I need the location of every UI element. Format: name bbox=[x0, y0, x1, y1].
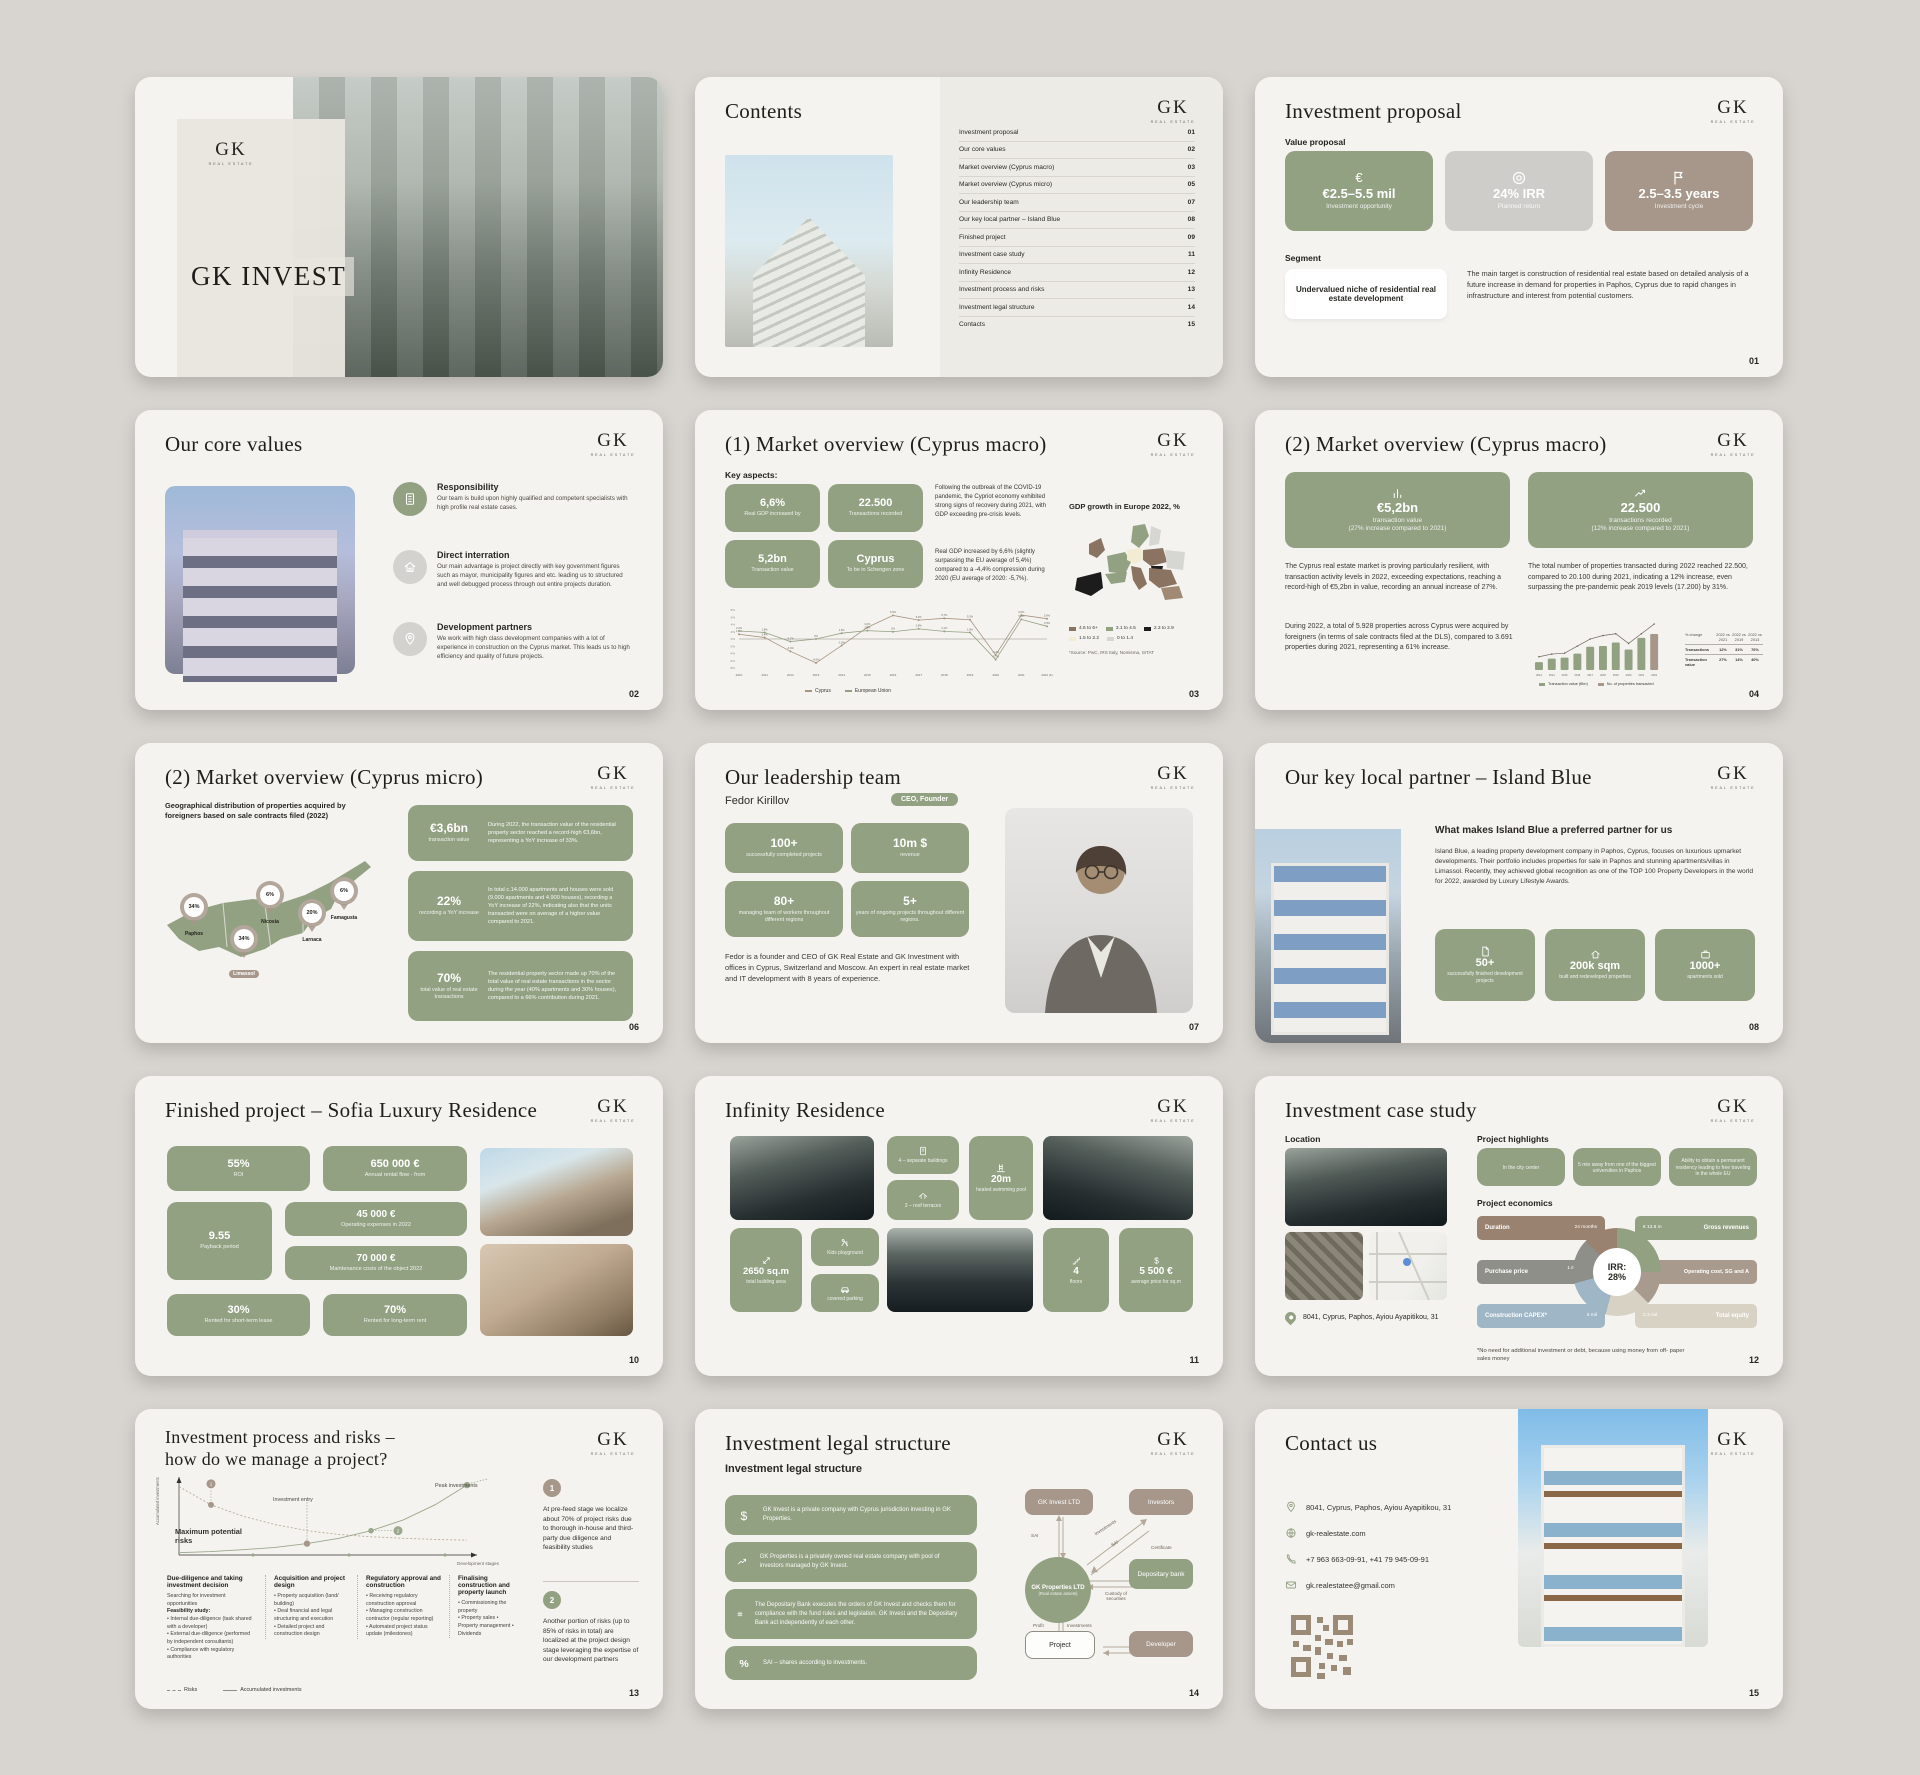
highlight-card: Ability to obtain a permanent residency … bbox=[1669, 1148, 1757, 1186]
gk-logo: GKREAL ESTATE bbox=[1709, 430, 1757, 457]
gk-logo-subtext: REAL ESTATE bbox=[1149, 786, 1197, 790]
gk-logo-text: GK bbox=[1149, 1096, 1197, 1118]
project-stat-card: 70%Rented for long-term rent bbox=[323, 1294, 467, 1336]
svg-text:2021: 2021 bbox=[1638, 673, 1644, 677]
card-value: 80+ bbox=[774, 894, 794, 908]
gk-logo-subtext: REAL ESTATE bbox=[589, 1119, 637, 1123]
page-number: 08 bbox=[1749, 1022, 1759, 1032]
slide-13-process-risks[interactable]: Investment process and risks – how do we… bbox=[135, 1409, 663, 1709]
direct-interaction-icon-circle bbox=[393, 550, 427, 584]
value-card-cycle: 2.5–3.5 years Investment cycle bbox=[1605, 151, 1753, 231]
percent-icon: % bbox=[737, 1656, 751, 1670]
stage-heading: Due-diligence and taking investment deci… bbox=[167, 1575, 253, 1589]
trend-up-icon bbox=[1634, 487, 1647, 500]
legal-card-4: % SAI – shares according to investments. bbox=[725, 1646, 977, 1680]
contents-item[interactable]: Market overview (Cyprus macro)03 bbox=[959, 159, 1195, 177]
project-stat-card: 70 000 €Maintenance costs of the object … bbox=[285, 1246, 467, 1280]
core-value-text: Our main advantage is project directly w… bbox=[437, 563, 633, 590]
gk-logo-text: GK bbox=[1149, 97, 1197, 119]
page-title: (2) Market overview (Cyprus micro) bbox=[165, 765, 483, 790]
svg-text:2022 (F): 2022 (F) bbox=[1041, 673, 1052, 677]
contents-item-page: 12 bbox=[1188, 269, 1195, 276]
card-value: 70% bbox=[384, 1304, 406, 1316]
gk-logo: GK REAL ESTATE bbox=[207, 139, 255, 166]
stage-heading: Regulatory approval and construction bbox=[366, 1575, 444, 1589]
card-caption: Investment opportunity bbox=[1326, 203, 1392, 211]
entry-annotation: Investment entry bbox=[273, 1497, 313, 1503]
card-caption: floors bbox=[1070, 1279, 1082, 1286]
ribbon-value: € 13.8 m bbox=[1643, 1225, 1662, 1231]
card-caption-2: (27% increase compared to 2021) bbox=[1349, 525, 1447, 533]
gk-logo-text: GK bbox=[589, 1429, 637, 1451]
gk-logo: GKREAL ESTATE bbox=[1149, 763, 1197, 790]
transactions-combo-chart: 2013201420152016201720182019202020212022 bbox=[1523, 618, 1671, 684]
card-caption: Real GDP increased by bbox=[744, 511, 800, 518]
economics-donut-center: IRR: 28% bbox=[1593, 1248, 1641, 1296]
legal-card-1: $ GK Invest is a private company with Cy… bbox=[725, 1495, 977, 1535]
address-text: 8041, Cyprus, Paphos, Ayiou Ayapitikou, … bbox=[1303, 1314, 1439, 1321]
page-title: Contents bbox=[725, 99, 802, 124]
contents-item-label: Finished project bbox=[959, 234, 1006, 241]
card-value: 1000+ bbox=[1690, 960, 1721, 972]
contact-text: gk.realestatee@gmail.com bbox=[1306, 1581, 1395, 1590]
card-text: GK Invest is a private company with Cypr… bbox=[763, 1506, 965, 1524]
table-cell: 31% bbox=[1731, 647, 1747, 652]
gk-logo-text: GK bbox=[1149, 1429, 1197, 1451]
project-stat-card: 30%Rented for short-term lease bbox=[167, 1294, 310, 1336]
contents-item[interactable]: Our key local partner – Island Blue08 bbox=[959, 212, 1195, 230]
card-caption: Operating expenses in 2022 bbox=[341, 1222, 411, 1229]
svg-text:2,2%: 2,2% bbox=[736, 626, 743, 630]
gk-logo-subtext: REAL ESTATE bbox=[1709, 120, 1757, 124]
highlight-text: Ability to obtain a permanent residency … bbox=[1673, 1158, 1753, 1178]
legend-label: 1.5 to 2.2 bbox=[1079, 636, 1099, 641]
slide-02-contents[interactable]: Contents GK REAL ESTATE Investment propo… bbox=[695, 77, 1223, 377]
responsibility-icon-circle bbox=[393, 482, 427, 516]
svg-text:-2%: -2% bbox=[730, 644, 736, 648]
card-value: 30% bbox=[227, 1304, 249, 1316]
contents-item[interactable]: Our leadership team07 bbox=[959, 194, 1195, 212]
card-value: 70 000 € bbox=[357, 1253, 396, 1264]
gk-logo-text: GK bbox=[1709, 1429, 1757, 1451]
slide-10-finished-project[interactable]: Finished project – Sofia Luxury Residenc… bbox=[135, 1076, 663, 1376]
stage-line: • Compliance with regulatory authorities bbox=[167, 1647, 253, 1662]
svg-text:1,8%: 1,8% bbox=[967, 627, 974, 631]
contents-item[interactable]: Our core values02 bbox=[959, 142, 1195, 160]
gdp-chart-legend: Cyprus European Union bbox=[805, 688, 891, 694]
gk-logo-text: GK bbox=[1709, 763, 1757, 785]
card-value: 4 bbox=[1073, 1266, 1079, 1277]
cover-photo-texture bbox=[293, 77, 663, 377]
gk-logo-subtext: REAL ESTATE bbox=[1709, 1119, 1757, 1123]
page-title: (2) Market overview (Cyprus macro) bbox=[1285, 432, 1607, 457]
core-value-text: We work with high class development comp… bbox=[437, 635, 633, 662]
card-text: GK Properties is a privately owned real … bbox=[760, 1553, 965, 1571]
card-caption: revenue bbox=[900, 852, 919, 859]
gk-logo-subtext: REAL ESTATE bbox=[589, 453, 637, 457]
map-legend-row-2: 1.5 to 2.2 0 to 1.4 bbox=[1069, 636, 1133, 641]
contents-item[interactable]: Contacts15 bbox=[959, 317, 1195, 334]
process-stage-3: Regulatory approval and construction • R… bbox=[357, 1575, 444, 1639]
note-divider bbox=[543, 1581, 639, 1582]
slide-06-market-macro-2[interactable]: (2) Market overview (Cyprus macro) GKREA… bbox=[1255, 410, 1783, 710]
slide-05-market-macro-1[interactable]: (1) Market overview (Cyprus macro) GKREA… bbox=[695, 410, 1223, 710]
gk-logo: GKREAL ESTATE bbox=[1709, 1429, 1757, 1456]
page-number: 06 bbox=[629, 1022, 639, 1032]
process-xlabel: Development stages bbox=[457, 1561, 499, 1566]
table-cell: 14% bbox=[1731, 657, 1747, 667]
value-card-investment: € €2.5–5.5 mil Investment opportunity bbox=[1285, 151, 1433, 231]
slide-03-investment-proposal[interactable]: Investment proposal GKREAL ESTATE Value … bbox=[1255, 77, 1783, 377]
legend-label: 4.6 to 6+ bbox=[1079, 626, 1098, 631]
legend-label: Risks bbox=[184, 1687, 197, 1693]
macro2-paragraph-3: The total number of properties transacte… bbox=[1528, 562, 1760, 594]
card-caption: Investment cycle bbox=[1655, 203, 1703, 211]
contents-item[interactable]: Market overview (Cyprus micro)05 bbox=[959, 177, 1195, 195]
contents-item[interactable]: Investment case study11 bbox=[959, 247, 1195, 265]
page-title: Infinity Residence bbox=[725, 1098, 885, 1123]
leader-bio: Fedor is a founder and CEO of GK Real Es… bbox=[725, 951, 970, 984]
card-value: 50+ bbox=[1476, 957, 1495, 969]
value-card-irr: 24% IRR Planned return bbox=[1445, 151, 1593, 231]
table-row-label: Transaction value bbox=[1685, 657, 1715, 667]
svg-text:6,6%: 6,6% bbox=[1018, 610, 1025, 614]
svg-text:2015: 2015 bbox=[1562, 673, 1568, 677]
slide-09-island-blue[interactable]: Our key local partner – Island Blue GKRE… bbox=[1255, 743, 1783, 1043]
ribbon-label: Construction CAPEX* bbox=[1485, 1313, 1547, 1319]
europe-map bbox=[1067, 522, 1199, 622]
donut-center-value: 28% bbox=[1608, 1272, 1626, 1282]
svg-text:3,5%: 3,5% bbox=[1044, 621, 1051, 625]
legend-label: Cyprus bbox=[815, 688, 831, 694]
contents-item-page: 09 bbox=[1188, 234, 1195, 241]
page-title: Finished project – Sofia Luxury Residenc… bbox=[165, 1098, 537, 1123]
svg-text:2%: 2% bbox=[891, 627, 895, 631]
core-value-item: Responsibility Our team is build upon hi… bbox=[437, 482, 633, 513]
svg-text:-6,6%: -6,6% bbox=[813, 658, 820, 662]
contents-item-page: 07 bbox=[1188, 199, 1195, 206]
gk-logo: GKREAL ESTATE bbox=[1709, 763, 1757, 790]
diagram-node-gk-properties: GK Properties LTD (Real estate assets) bbox=[1025, 1557, 1091, 1623]
edge-label-certificate: Certificate bbox=[1151, 1545, 1172, 1550]
card-text: The residential property sector made up … bbox=[488, 970, 623, 1002]
edge-label-custody: Custody of securities bbox=[1095, 1591, 1137, 1601]
card-value: 9.55 bbox=[209, 1230, 230, 1242]
contents-item-page: 01 bbox=[1188, 129, 1195, 136]
pin-value: 20% bbox=[298, 899, 326, 927]
svg-text:5,2%: 5,2% bbox=[916, 615, 923, 619]
slide-04-core-values[interactable]: Our core values GKREAL ESTATE Responsibi… bbox=[135, 410, 663, 710]
table-col-header: 2022 vs 2021 bbox=[1715, 632, 1731, 642]
highlight-text: 5 min away from one of the biggest unive… bbox=[1577, 1162, 1657, 1175]
card-value: 5 500 € bbox=[1139, 1266, 1172, 1277]
card-caption: ROI bbox=[234, 1172, 244, 1179]
micro-caption: Geographical distribution of properties … bbox=[165, 801, 375, 822]
core-values-photo-building bbox=[183, 530, 337, 682]
legal-card-3: The Depositary Bank executes the orders … bbox=[725, 1589, 977, 1639]
dollar-icon: $ bbox=[1151, 1255, 1162, 1266]
pin-icon bbox=[1285, 1501, 1297, 1513]
contents-list: Investment proposal01 Our core values02 … bbox=[959, 124, 1195, 333]
infinity-feature-card: 3 – roof terraces bbox=[887, 1180, 959, 1220]
diagram-node-depositary: Depositary bank bbox=[1129, 1559, 1193, 1589]
highlight-text: In the city center bbox=[1503, 1165, 1540, 1172]
ribbon-value: 2.3 mil bbox=[1643, 1313, 1657, 1319]
svg-text:2,8%: 2,8% bbox=[916, 624, 923, 628]
contents-item[interactable]: Investment process and risks13 bbox=[959, 282, 1195, 300]
card-caption-2: (12% increase compared to 2021) bbox=[1592, 525, 1690, 533]
process-stage-4: Finalising construction and property lau… bbox=[449, 1575, 518, 1638]
contact-text: +7 963 663-09-91, +41 79 945-09-91 bbox=[1306, 1555, 1429, 1564]
svg-text:2013: 2013 bbox=[813, 673, 820, 677]
svg-text:2013: 2013 bbox=[1536, 673, 1542, 677]
table-row-label: Transactions bbox=[1685, 647, 1715, 652]
infinity-feature-card: 20m heated swimming pool bbox=[969, 1136, 1033, 1220]
page-number: 10 bbox=[629, 1355, 639, 1365]
gk-logo-text: GK bbox=[589, 763, 637, 785]
map-pin-paphos: 34%Paphos bbox=[177, 893, 211, 937]
macro2-paragraph-1: The Cyprus real estate market is proving… bbox=[1285, 562, 1515, 594]
building-icon bbox=[918, 1146, 928, 1156]
page-number: 02 bbox=[629, 689, 639, 699]
map-pin-larnaca: 20%Larnaca bbox=[295, 899, 329, 943]
infinity-feature-card: 4 floors bbox=[1043, 1228, 1109, 1312]
svg-text:0%: 0% bbox=[814, 634, 818, 638]
card-caption: recording a YoY increase bbox=[418, 910, 480, 917]
location-label: Location bbox=[1285, 1134, 1320, 1144]
role-badge: CEO, Founder bbox=[891, 793, 958, 806]
card-value: 24% IRR bbox=[1493, 186, 1545, 201]
contact-text: gk-realestate.com bbox=[1306, 1529, 1366, 1538]
micro-card-1: €3,6bntransaction value During 2022, the… bbox=[408, 805, 633, 861]
leader-stat-card: 80+managing team of workers throughout d… bbox=[725, 881, 843, 937]
card-caption: Transactions recorded bbox=[849, 511, 902, 518]
stairs-icon bbox=[1071, 1255, 1082, 1266]
svg-text:2018: 2018 bbox=[941, 673, 948, 677]
contents-item[interactable]: Finished project09 bbox=[959, 229, 1195, 247]
roof-icon bbox=[918, 1191, 928, 1201]
stage-line: • Deal financial and legal structuring a… bbox=[274, 1608, 352, 1623]
svg-text:-5,7%: -5,7% bbox=[992, 654, 999, 658]
slide-01-title[interactable]: GK REAL ESTATE GK INVEST bbox=[135, 77, 663, 377]
gk-logo: GKREAL ESTATE bbox=[1149, 1096, 1197, 1123]
contents-item-label: Our core values bbox=[959, 146, 1006, 153]
economics-ribbon-duration: Duration24 months bbox=[1477, 1216, 1605, 1240]
diagram-node-project: Project bbox=[1025, 1631, 1095, 1659]
card-value: €3,6bn bbox=[418, 821, 480, 835]
map-pin-famagusta: 6%Famagusta bbox=[327, 877, 361, 921]
table-title: % change bbox=[1685, 632, 1715, 642]
page-number: 03 bbox=[1189, 689, 1199, 699]
contact-address-row[interactable]: 8041, Cyprus, Paphos, Ayiou Ayapitikou, … bbox=[1285, 1501, 1451, 1513]
contents-item[interactable]: Investment legal structure14 bbox=[959, 299, 1195, 317]
card-caption: 4 – separate buildings bbox=[899, 1158, 948, 1165]
euro-icon: € bbox=[1351, 170, 1367, 186]
gk-logo: GKREAL ESTATE bbox=[1709, 1096, 1757, 1123]
legend-label: No. of properties transacted bbox=[1607, 682, 1654, 686]
partner-building-windows bbox=[1271, 863, 1389, 1035]
contact-phone-row[interactable]: +7 963 663-09-91, +41 79 945-09-91 bbox=[1285, 1553, 1451, 1565]
svg-text:6%: 6% bbox=[731, 615, 736, 619]
leader-stat-card: 100+successfully completed projects bbox=[725, 823, 843, 873]
contents-item-page: 13 bbox=[1188, 286, 1195, 293]
card-value: 10m $ bbox=[893, 836, 927, 850]
core-value-text: Our team is build upon highly qualified … bbox=[437, 495, 633, 513]
card-caption: total building area bbox=[746, 1279, 785, 1286]
slide-07-market-micro[interactable]: (2) Market overview (Cyprus micro) GKREA… bbox=[135, 743, 663, 1043]
donut-center-title: IRR: bbox=[1608, 1262, 1627, 1272]
stage-line: • Managing construction contractor (regu… bbox=[366, 1608, 444, 1623]
infinity-feature-card: 4 – separate buildings bbox=[887, 1136, 959, 1174]
stage-line: • Property sales • Property management •… bbox=[458, 1615, 518, 1638]
slide-12-case-study[interactable]: Investment case study GKREAL ESTATE Loca… bbox=[1255, 1076, 1783, 1376]
pin-icon bbox=[403, 632, 417, 646]
svg-text:8%: 8% bbox=[731, 608, 736, 612]
cover-panel bbox=[177, 119, 345, 377]
qr-code bbox=[1285, 1609, 1359, 1683]
leader-stat-card: 10m $revenue bbox=[851, 823, 969, 873]
stage-line: Searching for investment opportunities bbox=[167, 1593, 253, 1608]
partner-stat-card: 1000+ apartments sold bbox=[1655, 929, 1755, 1001]
svg-text:2012: 2012 bbox=[787, 673, 794, 677]
highlights-label: Project highlights bbox=[1477, 1134, 1549, 1144]
value-proposal-label: Value proposal bbox=[1285, 137, 1345, 147]
pin-value: 6% bbox=[256, 881, 284, 909]
svg-text:2016: 2016 bbox=[1574, 673, 1580, 677]
card-caption: total value of real estate transactions bbox=[418, 987, 480, 1001]
contents-item[interactable]: Investment proposal01 bbox=[959, 124, 1195, 142]
table-cell: 12% bbox=[1715, 647, 1731, 652]
core-value-heading: Responsibility bbox=[437, 482, 633, 492]
note-number: 2 bbox=[543, 1591, 561, 1609]
project-photo-interior bbox=[480, 1244, 633, 1336]
infinity-feature-card: $ 5 500 € average price for sq.m bbox=[1119, 1228, 1193, 1312]
leader-stat-card: 5+years of ongoing projects throughout d… bbox=[851, 881, 969, 937]
contents-item-label: Contacts bbox=[959, 321, 985, 328]
gk-logo-subtext: REAL ESTATE bbox=[1709, 453, 1757, 457]
gk-logo-text: GK bbox=[1149, 430, 1197, 452]
card-value: 55% bbox=[227, 1158, 249, 1170]
card-caption: apartments sold bbox=[1687, 974, 1723, 981]
card-caption: 3 – roof terraces bbox=[905, 1203, 941, 1210]
page-number: 12 bbox=[1749, 1355, 1759, 1365]
gk-logo-text: GK bbox=[1709, 97, 1757, 119]
key-aspect-card: 22.500Transactions recorded bbox=[828, 484, 923, 532]
process-legend: Risks Accumulated investments bbox=[167, 1687, 302, 1693]
pin-tail bbox=[340, 904, 348, 914]
slide-08-leadership[interactable]: Our leadership team GKREAL ESTATE Fedor … bbox=[695, 743, 1223, 1043]
process-stage-2: Acquisition and project design • Propert… bbox=[265, 1575, 352, 1639]
slide-15-contacts[interactable]: Contact us GKREAL ESTATE 8041, Cyprus, P… bbox=[1255, 1409, 1783, 1709]
card-caption: transaction value bbox=[418, 837, 480, 844]
key-aspects-label: Key aspects: bbox=[725, 470, 777, 480]
pin-tail bbox=[240, 952, 248, 962]
segment-card-text: Undervalued niche of residential real es… bbox=[1289, 285, 1443, 303]
card-caption: Transaction value bbox=[751, 567, 793, 574]
partner-stat-card: 50+ successfully finished development pr… bbox=[1435, 929, 1535, 1001]
infinity-feature-card: 2650 sq.m total building area bbox=[730, 1228, 802, 1312]
economics-ribbon-equity: 2.3 milTotal equity bbox=[1635, 1304, 1757, 1328]
gk-logo: GKREAL ESTATE bbox=[589, 1429, 637, 1456]
svg-text:2022: 2022 bbox=[1651, 673, 1657, 677]
card-value: €5,2bn bbox=[1377, 500, 1418, 515]
contact-website-row[interactable]: gk-realestate.com bbox=[1285, 1527, 1451, 1539]
stage-line: • Detailed project and construction desi… bbox=[274, 1624, 352, 1639]
diagram-node-developer: Developer bbox=[1129, 1631, 1193, 1657]
slide-11-infinity-residence[interactable]: Infinity Residence GKREAL ESTATE 4 – sep… bbox=[695, 1076, 1223, 1376]
key-aspect-card: 5,2bnTransaction value bbox=[725, 540, 820, 588]
contents-item-page: 02 bbox=[1188, 146, 1195, 153]
europe-map-title: GDP growth in Europe 2022, % bbox=[1069, 502, 1199, 511]
highlight-card: 5 min away from one of the biggest unive… bbox=[1573, 1148, 1661, 1186]
legend-swatch bbox=[845, 690, 852, 692]
gk-logo: GKREAL ESTATE bbox=[589, 1096, 637, 1123]
edge-label-profit: Profit bbox=[1033, 1623, 1044, 1628]
satellite-map bbox=[1285, 1232, 1363, 1300]
svg-text:2021: 2021 bbox=[1018, 673, 1025, 677]
project-stat-card: 650 000 €Annual rental flow - from bbox=[323, 1146, 467, 1191]
page-title: (1) Market overview (Cyprus macro) bbox=[725, 432, 1047, 457]
page-title-line1: Investment process and risks – bbox=[165, 1427, 395, 1449]
legend-label: 0 to 1.4 bbox=[1117, 636, 1133, 641]
presentation-deck-grid: GK REAL ESTATE GK INVEST Contents GK REA… bbox=[0, 0, 1920, 1775]
node-label: Investors bbox=[1148, 1499, 1174, 1506]
card-value: 22.500 bbox=[1621, 500, 1661, 515]
page-number: 01 bbox=[1749, 356, 1759, 366]
legend-label: European Union bbox=[855, 688, 891, 694]
svg-text:5,4%: 5,4% bbox=[1018, 614, 1025, 618]
svg-text:2019: 2019 bbox=[967, 673, 974, 677]
svg-text:2016: 2016 bbox=[890, 673, 897, 677]
core-value-item: Direct interration Our main advantage is… bbox=[437, 550, 633, 590]
svg-text:2018: 2018 bbox=[1600, 673, 1606, 677]
page-title: Investment proposal bbox=[1285, 99, 1462, 124]
map-pin-limassol: 34%Limassol bbox=[227, 925, 261, 980]
contents-item-label: Investment case study bbox=[959, 251, 1025, 258]
card-caption: transaction value bbox=[1373, 517, 1422, 525]
gk-logo-subtext: REAL ESTATE bbox=[589, 786, 637, 790]
trend-up-icon bbox=[737, 1555, 748, 1569]
partner-stat-card: 200k sqm built and redeveloped propertie… bbox=[1545, 929, 1645, 1001]
card-caption: Rented for long-term rent bbox=[364, 1318, 427, 1325]
pin-city: Famagusta bbox=[327, 915, 361, 921]
table-cell: 40% bbox=[1747, 657, 1763, 667]
svg-text:2019: 2019 bbox=[1613, 673, 1619, 677]
contact-email-row[interactable]: gk.realestatee@gmail.com bbox=[1285, 1579, 1451, 1591]
ribbon-label: Gross revenues bbox=[1704, 1225, 1749, 1231]
stat-card-transactions: 22.500 transactions recorded (12% increa… bbox=[1528, 472, 1753, 548]
stage-line: • Property acquisition (land/ building) bbox=[274, 1593, 352, 1608]
slide-14-legal-structure[interactable]: Investment legal structure GKREAL ESTATE… bbox=[695, 1409, 1223, 1709]
gk-logo: GKREAL ESTATE bbox=[1149, 1429, 1197, 1456]
target-icon bbox=[1511, 170, 1527, 186]
diagram-node-investors: Investors bbox=[1129, 1489, 1193, 1515]
node-sublabel: (Real estate assets) bbox=[1038, 1591, 1077, 1596]
contact-photo-building bbox=[1541, 1445, 1685, 1647]
svg-text:2015: 2015 bbox=[864, 673, 871, 677]
gk-logo: GK REAL ESTATE bbox=[1149, 97, 1197, 124]
node-label: Developer bbox=[1146, 1641, 1176, 1648]
gk-logo-subtext: REAL ESTATE bbox=[1149, 1452, 1197, 1456]
card-value: 20m bbox=[991, 1174, 1011, 1185]
contents-item-label: Investment process and risks bbox=[959, 286, 1044, 293]
contents-item[interactable]: Infinity Residence12 bbox=[959, 264, 1195, 282]
stage-line: • External due-diligence (performed by i… bbox=[167, 1631, 253, 1646]
page-number: 11 bbox=[1189, 1355, 1199, 1365]
playground-icon bbox=[840, 1238, 850, 1248]
ribbon-label: Duration bbox=[1485, 1225, 1510, 1231]
svg-text:2%: 2% bbox=[731, 630, 736, 634]
